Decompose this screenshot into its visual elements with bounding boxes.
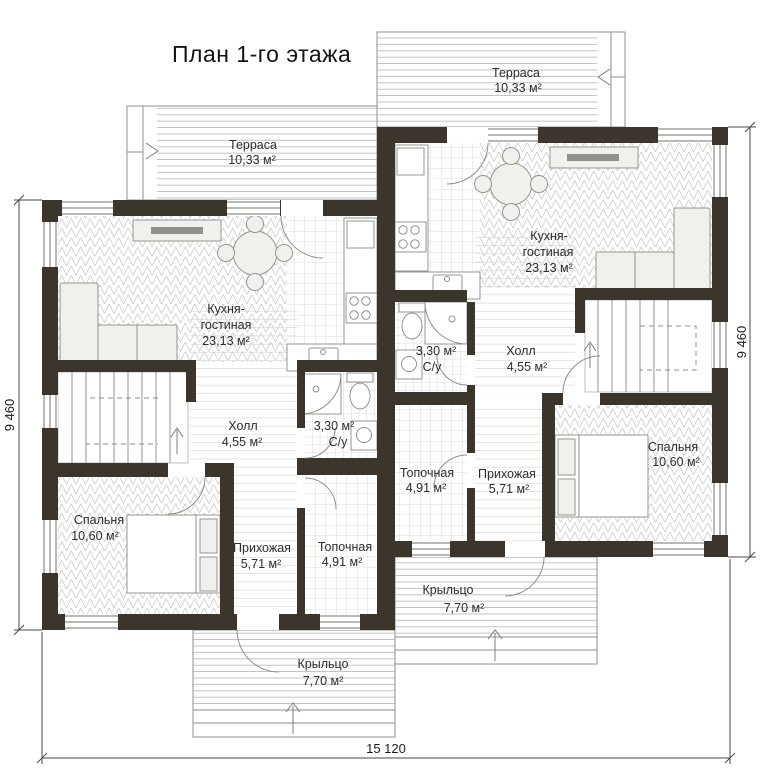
wall-stairs-left-stub: [186, 360, 196, 402]
pillow-icon: [200, 557, 217, 591]
tv-left: [151, 227, 203, 234]
wall-entry-right-side: [467, 385, 475, 453]
washing-machine-left: [351, 421, 377, 450]
label-porch-right-area: 7,70 м²: [444, 601, 485, 615]
wall-wc-left-side: [297, 372, 305, 428]
door-gap: [505, 541, 545, 557]
dining-table-left: [233, 231, 277, 275]
wall-boiler-left-side: [297, 508, 305, 614]
window: [65, 614, 118, 630]
label-hall-left-area: 4,55 м²: [222, 435, 263, 449]
plan-title: План 1-го этажа: [172, 41, 351, 67]
porch-left: [193, 630, 395, 737]
label-wc-right-area: 3,30 м²: [416, 344, 457, 358]
wall-wc-left-top: [297, 360, 377, 372]
chair-icon: [503, 148, 520, 165]
wall-bedroom-entry-left: [220, 463, 234, 614]
dining-table-right: [490, 163, 532, 205]
window: [42, 520, 58, 573]
label-kitchen-left-line2: гостиная: [201, 318, 252, 332]
label-kitchen-right-line1: Кухня-: [530, 229, 568, 243]
fridge-left: [347, 221, 374, 248]
shower-right: [425, 302, 467, 344]
staircase-right-area: [585, 300, 712, 392]
wall-wc-right-top: [395, 290, 467, 302]
stove-left: [346, 293, 377, 323]
wall-wc-left-bottom: [297, 458, 377, 475]
wall-bedroom-left-top: [42, 463, 168, 477]
chair-icon: [475, 176, 492, 193]
window: [712, 145, 728, 197]
label-entry-left-area: 5,71 м²: [241, 557, 282, 571]
label-bedroom-left-area: 10,60 м²: [71, 529, 119, 543]
label-hall-right-name: Холл: [506, 344, 535, 358]
window: [42, 395, 58, 428]
label-terrace-right-area: 10,33 м²: [494, 81, 542, 95]
wall-bedroom-entry-right: [542, 393, 555, 541]
toilet-left: [350, 383, 370, 409]
fridge-right: [397, 148, 424, 175]
sofa-left-chaise: [60, 283, 98, 363]
wall-boiler-right-side: [467, 488, 475, 541]
window: [62, 200, 113, 216]
porch-right-deck: [395, 557, 597, 637]
door-gap: [447, 127, 488, 143]
window: [712, 483, 728, 535]
wall-bedroom-right-top: [600, 393, 712, 405]
porch-left-deck: [193, 630, 395, 710]
chair-icon: [247, 274, 264, 291]
window: [412, 541, 450, 557]
label-entry-left-name: Прихожая: [233, 541, 291, 555]
floor-plan-page: Терраса 10,33 м² Терраса 10,33 м² Кухня-…: [0, 0, 771, 777]
label-kitchen-left-line1: Кухня-: [207, 302, 245, 316]
label-kitchen-right-line2: гостиная: [523, 245, 574, 259]
label-bedroom-left-name: Спальня: [74, 513, 124, 527]
pillow-icon: [200, 519, 217, 553]
staircase-right: [584, 300, 712, 392]
toilet-right-tank: [399, 303, 425, 312]
label-bedroom-right-name: Спальня: [648, 440, 698, 454]
label-wc-right-name: С/у: [423, 360, 443, 374]
terrace-right-deck: [377, 32, 597, 127]
shower-left: [301, 374, 341, 414]
porch-right: [395, 557, 597, 664]
floor-plan-drawing: Терраса 10,33 м² Терраса 10,33 м² Кухня-…: [0, 0, 771, 777]
window: [42, 222, 58, 267]
wall-stairs-left: [58, 360, 190, 372]
floor-entry-left: [234, 463, 297, 614]
label-terrace-left-area: 10,33 м²: [228, 153, 276, 167]
chair-icon: [247, 216, 264, 233]
terrace-right-step-arrow-icon: [598, 69, 610, 85]
pillow-icon: [558, 479, 575, 515]
label-hall-right-area: 4,55 м²: [507, 360, 548, 374]
wall-stairs-right: [575, 288, 712, 300]
window: [320, 614, 360, 630]
window: [712, 322, 728, 368]
terrace-left-step-arrow-icon: [146, 143, 158, 159]
label-terrace-left-name: Терраса: [229, 138, 277, 152]
label-porch-left-area: 7,70 м²: [303, 674, 344, 688]
label-entry-right-area: 5,71 м²: [489, 482, 530, 496]
label-porch-left-name: Крыльцо: [298, 657, 349, 671]
staircase-left: [58, 372, 188, 463]
wall-stairs-right-stub: [575, 288, 585, 333]
label-boiler-left-area: 4,91 м²: [322, 555, 363, 569]
chair-icon: [503, 204, 520, 221]
toilet-left-tank: [347, 373, 373, 382]
label-boiler-right-area: 4,91 м²: [406, 481, 447, 495]
window: [488, 127, 538, 143]
window: [653, 541, 704, 557]
staircase-left-area: [58, 372, 188, 463]
pillow-icon: [558, 439, 575, 475]
label-wc-left-area: 3,30 м²: [314, 419, 355, 433]
label-terrace-right-name: Терраса: [492, 66, 540, 80]
wall-wc-right-bottom: [395, 392, 475, 405]
label-kitchen-left-area: 23,13 м²: [202, 334, 250, 348]
stove-right: [395, 222, 426, 252]
tv-right: [567, 154, 619, 161]
chair-icon: [531, 176, 548, 193]
chair-icon: [218, 245, 235, 262]
label-boiler-right-name: Топочная: [400, 466, 454, 480]
label-kitchen-right-area: 23,13 м²: [525, 261, 573, 275]
door-gap: [237, 614, 279, 630]
label-boiler-left-name: Топочная: [318, 540, 372, 554]
label-entry-right-name: Прихожая: [478, 467, 536, 481]
toilet-right: [402, 313, 422, 339]
window: [227, 200, 280, 216]
wall-wc-right-side: [467, 302, 475, 355]
label-porch-right-name: Крыльцо: [423, 583, 474, 597]
sofa-right-chaise: [674, 208, 710, 290]
door-gap: [281, 200, 323, 216]
label-wc-left-name: С/у: [329, 435, 349, 449]
dimension-left-value: 9 460: [2, 399, 17, 432]
window: [658, 127, 712, 143]
label-bedroom-right-area: 10,60 м²: [652, 455, 700, 469]
dimension-right-value: 9 460: [734, 326, 749, 359]
chair-icon: [276, 245, 293, 262]
dimension-bottom-value: 15 120: [366, 741, 406, 756]
label-hall-left-name: Холл: [228, 419, 257, 433]
